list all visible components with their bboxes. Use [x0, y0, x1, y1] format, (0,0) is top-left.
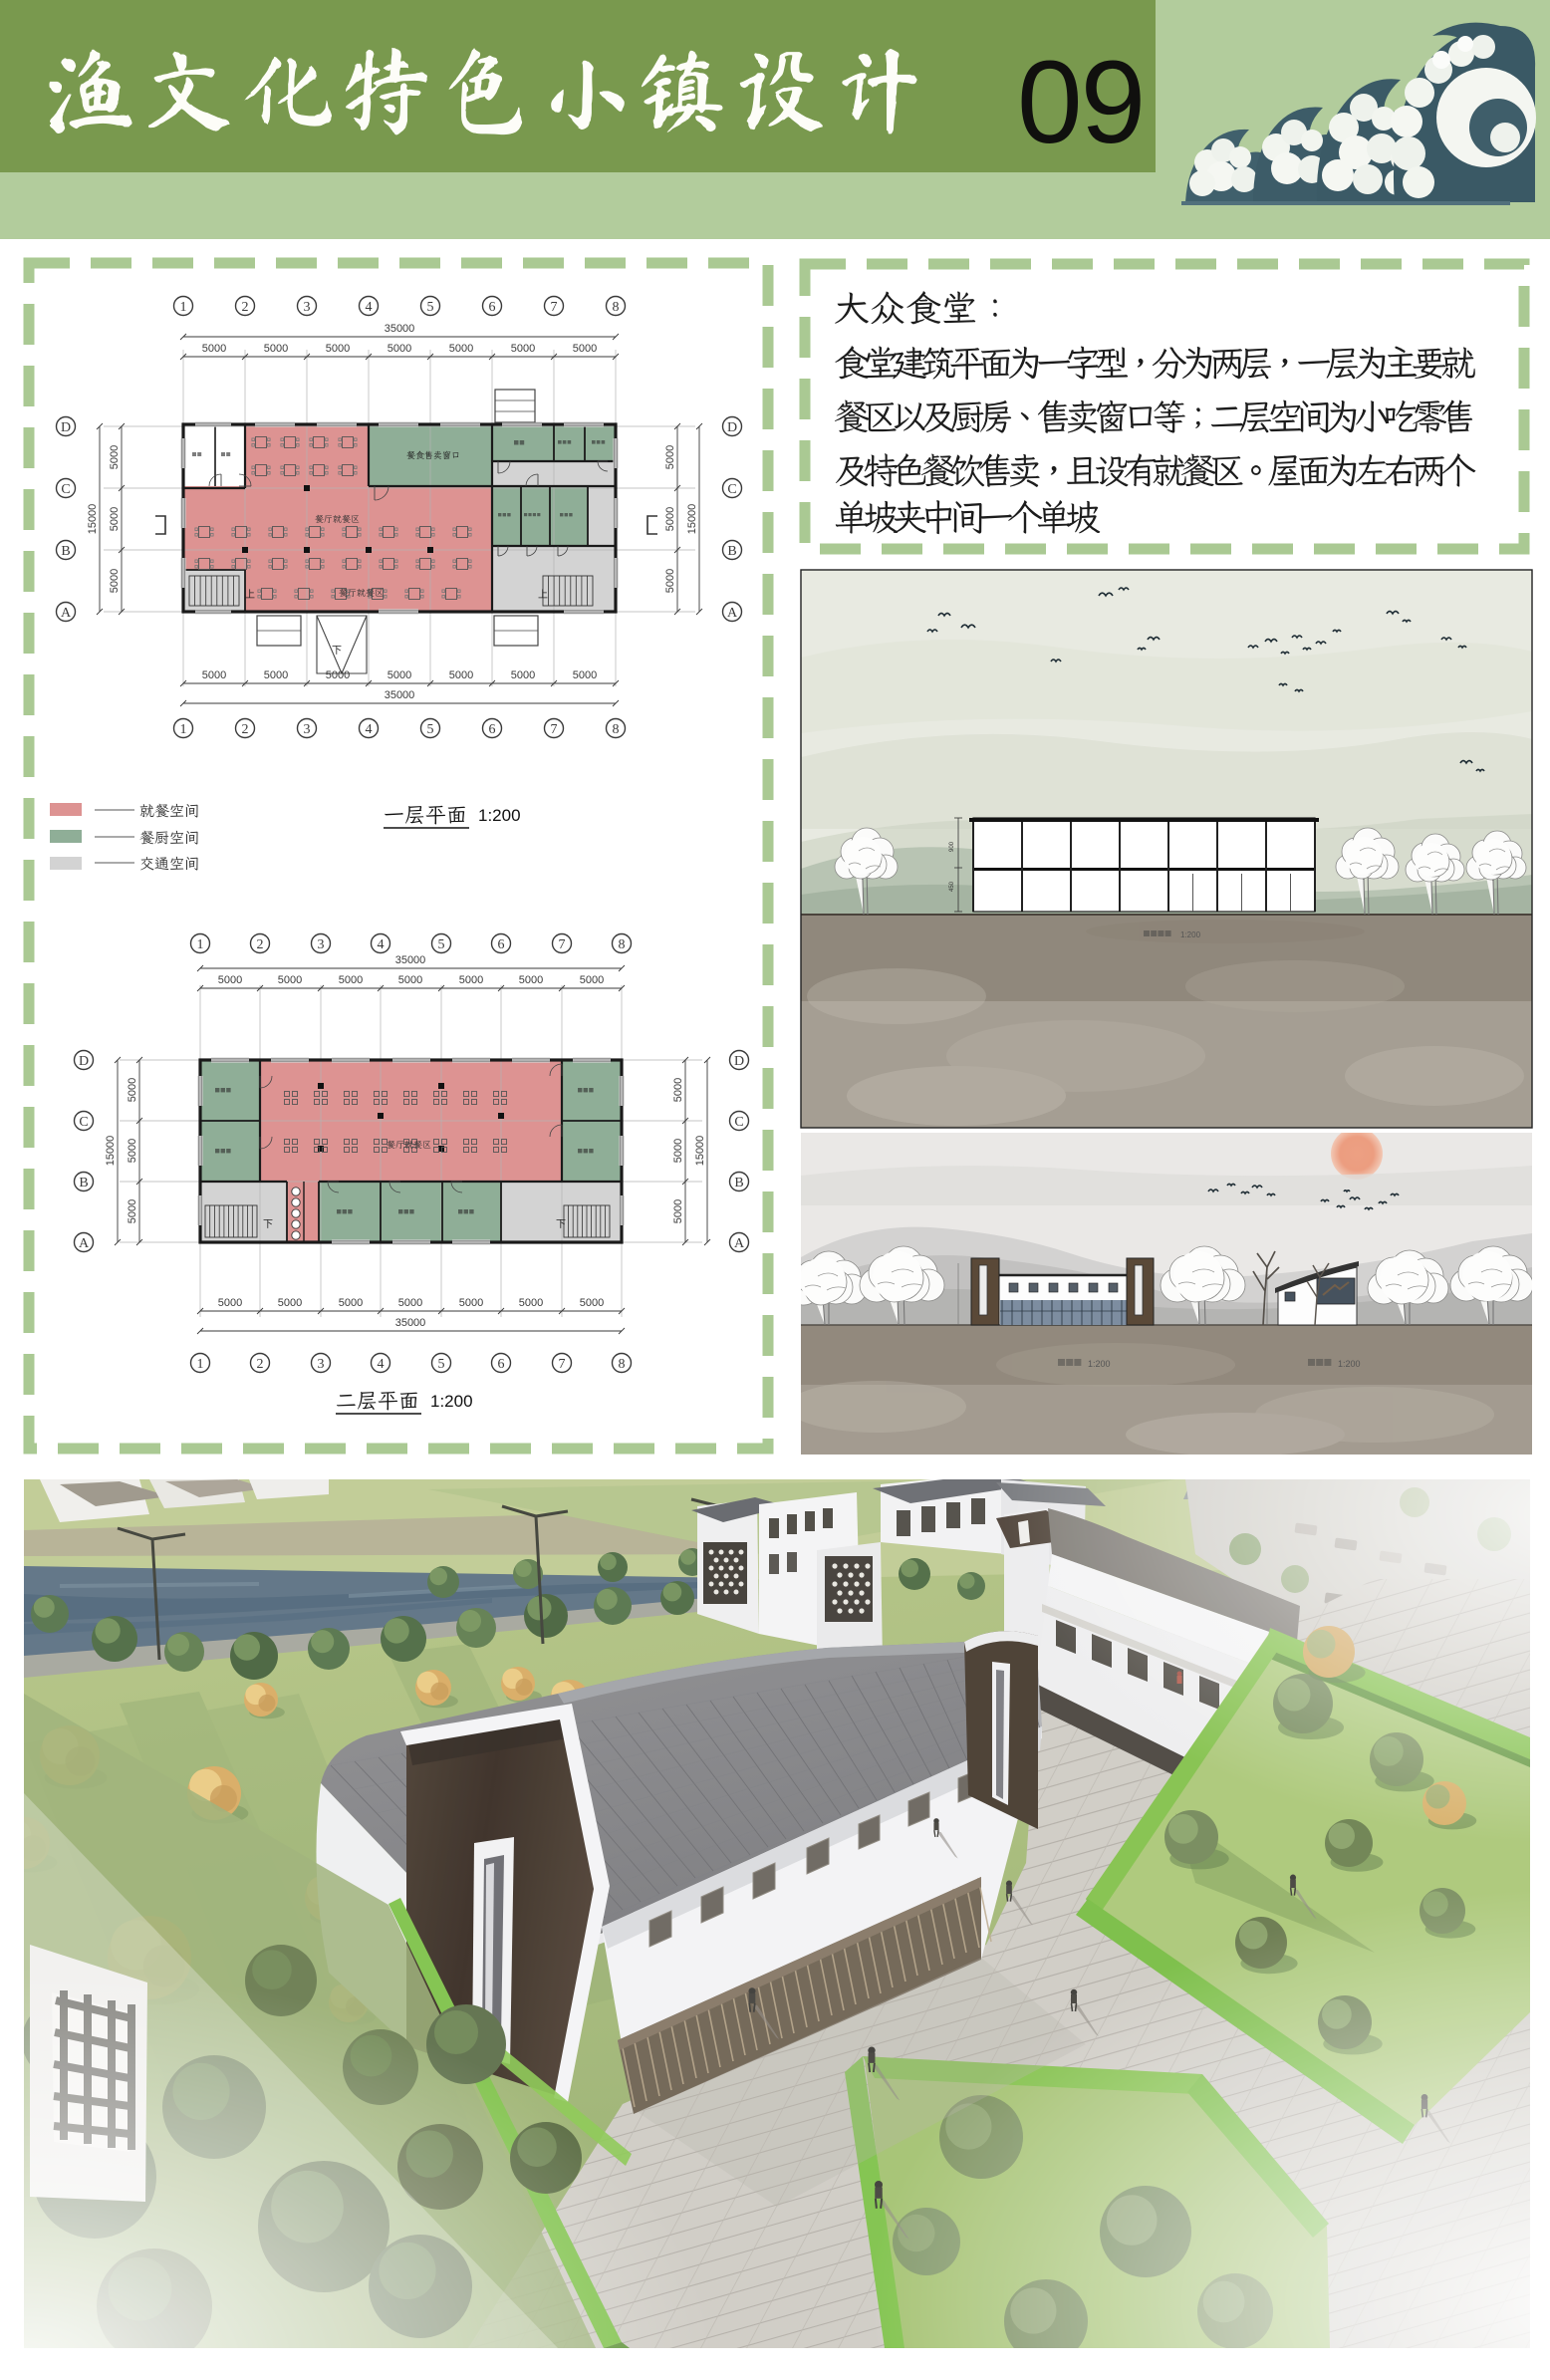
svg-text:09: 09 — [1017, 37, 1144, 168]
svg-text:4: 4 — [366, 300, 373, 315]
svg-text:B: B — [79, 1176, 88, 1190]
svg-text:900: 900 — [949, 841, 955, 852]
svg-text:5000: 5000 — [672, 1199, 684, 1223]
svg-text:7: 7 — [551, 300, 558, 315]
svg-text:1:200: 1:200 — [478, 806, 521, 825]
svg-text:5000: 5000 — [278, 1297, 302, 1309]
svg-text:5000: 5000 — [127, 1139, 138, 1163]
svg-text:5000: 5000 — [202, 669, 226, 681]
svg-text:5: 5 — [438, 937, 445, 952]
svg-text:5000: 5000 — [519, 1297, 543, 1309]
svg-text:5000: 5000 — [664, 445, 676, 469]
svg-text:35000: 35000 — [385, 689, 415, 701]
svg-text:2: 2 — [242, 300, 249, 315]
svg-text:6: 6 — [498, 937, 505, 952]
svg-text:5000: 5000 — [664, 569, 676, 593]
svg-text:5000: 5000 — [580, 974, 604, 986]
svg-text:5000: 5000 — [519, 974, 543, 986]
svg-text:5: 5 — [438, 1357, 445, 1372]
svg-text:5000: 5000 — [449, 669, 473, 681]
svg-text:8: 8 — [619, 937, 626, 952]
svg-text:上: 上 — [538, 589, 548, 601]
svg-text:15000: 15000 — [686, 504, 698, 535]
svg-text:5000: 5000 — [511, 343, 535, 355]
svg-text:15000: 15000 — [694, 1136, 706, 1167]
svg-text:3: 3 — [304, 300, 311, 315]
svg-text:3: 3 — [318, 1357, 325, 1372]
svg-text:2: 2 — [242, 722, 249, 737]
svg-text:1:200: 1:200 — [1088, 1359, 1111, 1369]
svg-text:4: 4 — [378, 937, 385, 952]
svg-text:5: 5 — [427, 300, 434, 315]
svg-text:下: 下 — [556, 1219, 566, 1230]
svg-text:D: D — [61, 420, 71, 435]
svg-text:5000: 5000 — [387, 669, 411, 681]
svg-text:C: C — [734, 1115, 743, 1130]
svg-text:3: 3 — [304, 722, 311, 737]
svg-text:7: 7 — [559, 937, 566, 952]
svg-text:D: D — [727, 420, 737, 435]
svg-text:C: C — [61, 482, 70, 497]
svg-text:上: 上 — [245, 589, 255, 601]
svg-text:B: B — [727, 544, 736, 559]
svg-text:5000: 5000 — [459, 974, 483, 986]
svg-text:1: 1 — [180, 300, 187, 315]
svg-text:B: B — [734, 1176, 743, 1190]
svg-text:7: 7 — [559, 1357, 566, 1372]
svg-text:5000: 5000 — [398, 1297, 422, 1309]
svg-text:1: 1 — [197, 1357, 204, 1372]
svg-text:8: 8 — [619, 1357, 626, 1372]
svg-text:1:200: 1:200 — [1338, 1359, 1361, 1369]
svg-text:5000: 5000 — [339, 1297, 363, 1309]
svg-text:5000: 5000 — [218, 974, 242, 986]
svg-text:B: B — [61, 544, 70, 559]
svg-text:1:200: 1:200 — [1180, 930, 1201, 939]
svg-text:5000: 5000 — [127, 1199, 138, 1223]
svg-text:C: C — [727, 482, 736, 497]
svg-text:5000: 5000 — [573, 343, 597, 355]
svg-text:1: 1 — [180, 722, 187, 737]
svg-text:35000: 35000 — [385, 323, 415, 335]
svg-text:6: 6 — [498, 1357, 505, 1372]
svg-text:下: 下 — [263, 1219, 273, 1230]
svg-text:15000: 15000 — [87, 504, 99, 535]
svg-text:35000: 35000 — [395, 954, 426, 966]
svg-text:C: C — [79, 1115, 88, 1130]
svg-text:35000: 35000 — [395, 1317, 426, 1329]
svg-text:A: A — [79, 1236, 90, 1251]
svg-text:450: 450 — [949, 881, 955, 892]
svg-text:5000: 5000 — [511, 669, 535, 681]
svg-text:6: 6 — [489, 300, 496, 315]
svg-text:5000: 5000 — [326, 343, 350, 355]
svg-text:5000: 5000 — [109, 569, 121, 593]
svg-text:4: 4 — [378, 1357, 385, 1372]
svg-text:15000: 15000 — [105, 1136, 117, 1167]
svg-text:5000: 5000 — [339, 974, 363, 986]
svg-text:1:200: 1:200 — [430, 1392, 473, 1411]
svg-text:5: 5 — [427, 722, 434, 737]
svg-text:5000: 5000 — [278, 974, 302, 986]
svg-text:5000: 5000 — [672, 1139, 684, 1163]
svg-text:5000: 5000 — [218, 1297, 242, 1309]
svg-text:5000: 5000 — [573, 669, 597, 681]
svg-text:5000: 5000 — [326, 669, 350, 681]
svg-text:8: 8 — [613, 722, 620, 737]
svg-text:5000: 5000 — [387, 343, 411, 355]
svg-text:5000: 5000 — [672, 1078, 684, 1102]
svg-text:5000: 5000 — [398, 974, 422, 986]
svg-text:A: A — [61, 606, 72, 621]
svg-text:A: A — [734, 1236, 745, 1251]
svg-text:5000: 5000 — [127, 1078, 138, 1102]
svg-text:5000: 5000 — [580, 1297, 604, 1309]
svg-text:3: 3 — [318, 937, 325, 952]
svg-text:7: 7 — [551, 722, 558, 737]
svg-text:5000: 5000 — [664, 507, 676, 531]
svg-text:下: 下 — [332, 646, 342, 657]
svg-text:5000: 5000 — [459, 1297, 483, 1309]
svg-text:5000: 5000 — [202, 343, 226, 355]
svg-text:2: 2 — [257, 937, 264, 952]
svg-text:1: 1 — [197, 937, 204, 952]
svg-text:2: 2 — [257, 1357, 264, 1372]
svg-text:5000: 5000 — [109, 445, 121, 469]
svg-text:4: 4 — [366, 722, 373, 737]
svg-text:6: 6 — [489, 722, 496, 737]
svg-text:5000: 5000 — [264, 343, 288, 355]
svg-text:5000: 5000 — [109, 507, 121, 531]
svg-text:D: D — [79, 1054, 89, 1069]
svg-text:8: 8 — [613, 300, 620, 315]
svg-text:5000: 5000 — [264, 669, 288, 681]
svg-text:A: A — [727, 606, 738, 621]
svg-text:5000: 5000 — [449, 343, 473, 355]
svg-text:D: D — [734, 1054, 744, 1069]
